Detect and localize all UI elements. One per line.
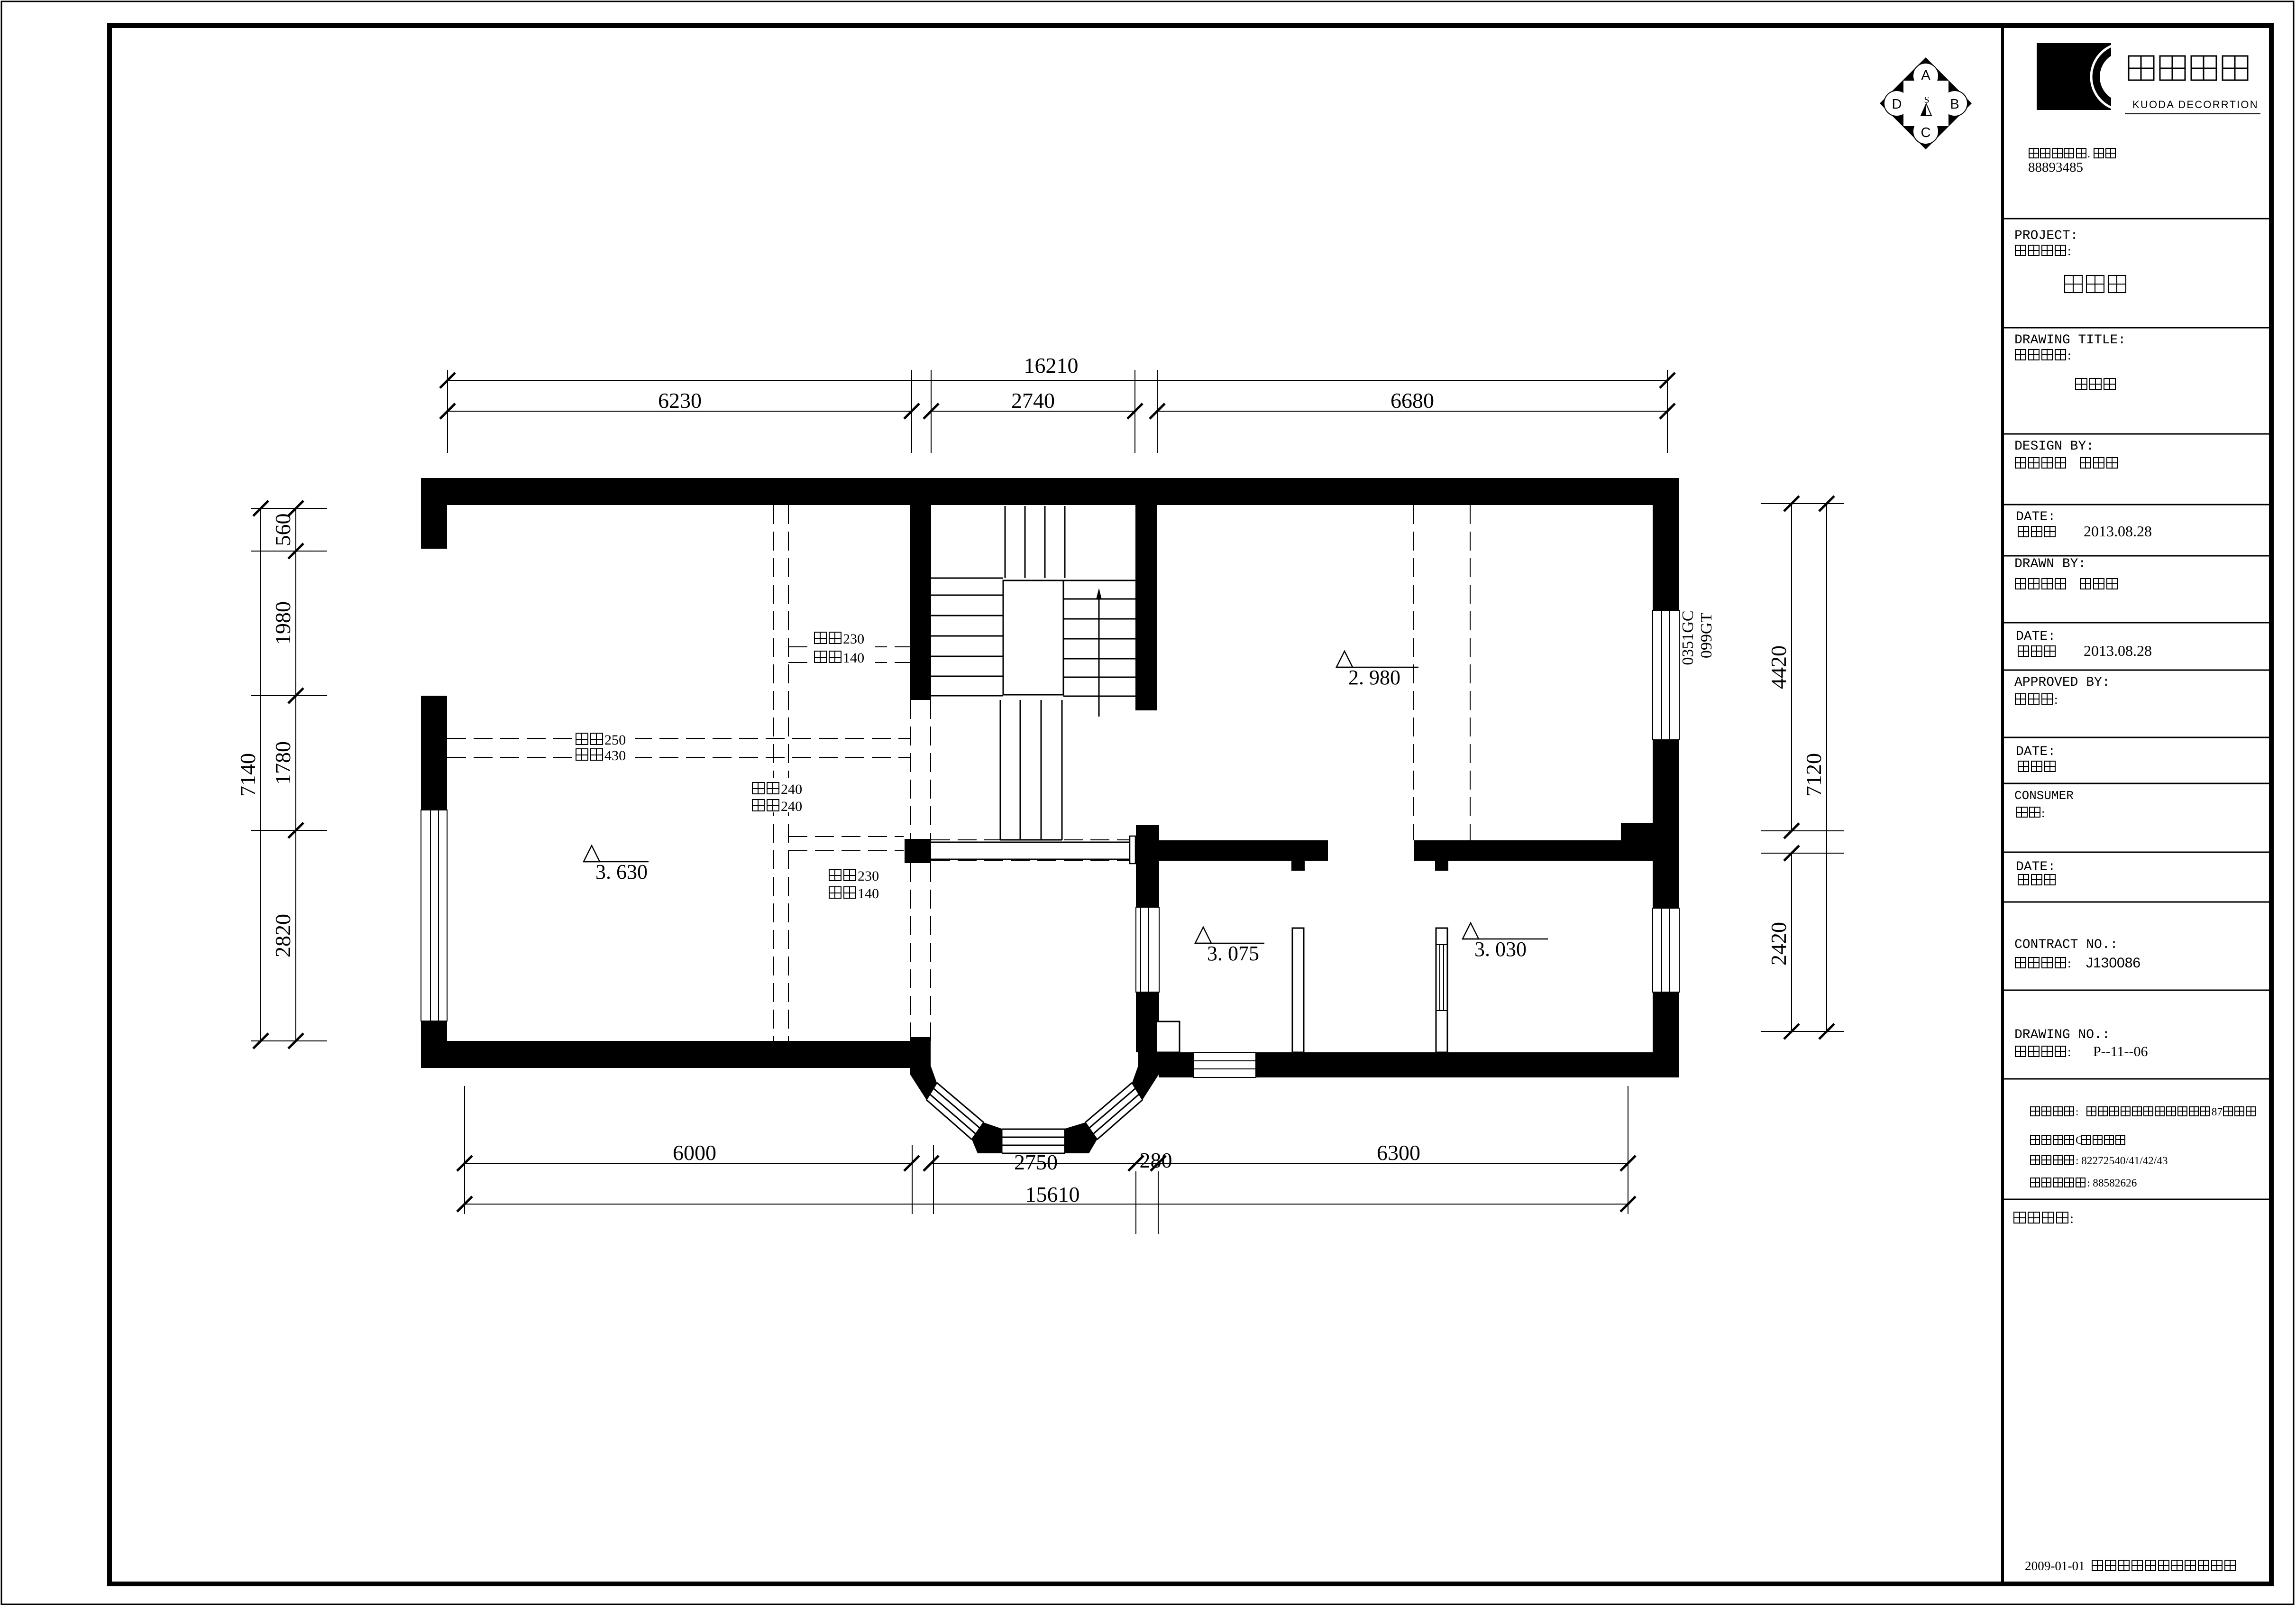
svg-text:.: .: [2087, 147, 2090, 160]
svg-text:J130086: J130086: [2086, 955, 2140, 971]
svg-text:88893485: 88893485: [2028, 160, 2083, 175]
svg-text:140: 140: [858, 885, 879, 902]
svg-text:DATE:: DATE:: [2016, 860, 2056, 874]
svg-text:2820: 2820: [271, 914, 295, 957]
svg-text:15610: 15610: [1025, 1182, 1080, 1206]
svg-text::: :: [2054, 692, 2058, 707]
svg-text:P--11--06: P--11--06: [2093, 1044, 2148, 1059]
svg-text:DRAWING NO.:: DRAWING NO.:: [2014, 1028, 2110, 1042]
svg-text:7140: 7140: [236, 753, 260, 797]
svg-text:B: B: [1950, 97, 1959, 112]
svg-text:6300: 6300: [1377, 1141, 1420, 1165]
svg-text:DATE:: DATE:: [2016, 510, 2056, 524]
svg-text:DATE:: DATE:: [2016, 745, 2056, 759]
svg-text:2013.08.28: 2013.08.28: [2084, 642, 2152, 659]
svg-text:6230: 6230: [658, 388, 702, 413]
svg-text:0351GC: 0351GC: [1679, 610, 1697, 665]
svg-text:2750: 2750: [1014, 1150, 1058, 1174]
svg-text:7120: 7120: [1802, 753, 1826, 797]
svg-text:6680: 6680: [1390, 388, 1434, 413]
svg-text:140: 140: [843, 650, 864, 666]
svg-text:PROJECT:: PROJECT:: [2014, 229, 2078, 243]
svg-text:CONTRACT NO.:: CONTRACT NO.:: [2014, 938, 2118, 952]
svg-text:APPROVED BY:: APPROVED BY:: [2014, 675, 2110, 690]
svg-text:2420: 2420: [1766, 922, 1791, 966]
svg-text::: :: [2041, 806, 2045, 820]
svg-text:1780: 1780: [271, 741, 295, 785]
svg-text:230: 230: [843, 631, 864, 647]
svg-text:S: S: [1924, 95, 1929, 105]
svg-text:2. 980: 2. 980: [1348, 666, 1400, 689]
svg-text::: :: [2076, 1106, 2078, 1118]
svg-text:D: D: [1892, 97, 1902, 112]
svg-text:: 88582626: : 88582626: [2087, 1177, 2137, 1189]
svg-text::: :: [2067, 1045, 2071, 1059]
svg-text:16210: 16210: [1024, 353, 1079, 377]
svg-text:560: 560: [271, 514, 295, 546]
svg-text:87: 87: [2212, 1106, 2223, 1118]
svg-text:4420: 4420: [1766, 645, 1791, 689]
svg-text:DRAWN BY:: DRAWN BY:: [2014, 557, 2086, 571]
svg-text:1980: 1980: [271, 601, 295, 645]
svg-text:2740: 2740: [1011, 388, 1055, 413]
svg-text::: :: [2070, 1211, 2074, 1226]
svg-text:099GT: 099GT: [1698, 613, 1715, 659]
svg-text:230: 230: [858, 868, 879, 884]
svg-text:280: 280: [1140, 1148, 1172, 1172]
svg-text:2013.08.28: 2013.08.28: [2084, 523, 2152, 540]
svg-text:250: 250: [604, 732, 626, 748]
svg-text:2009-01-01: 2009-01-01: [2025, 1559, 2085, 1573]
svg-text:CONSUMER: CONSUMER: [2014, 789, 2074, 803]
svg-text::: :: [2067, 348, 2071, 362]
svg-text:A: A: [1921, 68, 1930, 83]
svg-text:240: 240: [781, 798, 802, 814]
svg-text:DRAWING TITLE:: DRAWING TITLE:: [2014, 333, 2126, 348]
svg-text:6000: 6000: [673, 1141, 716, 1165]
svg-text:430: 430: [604, 747, 626, 764]
svg-text:DATE:: DATE:: [2016, 629, 2056, 644]
svg-text::: :: [2067, 244, 2071, 258]
svg-text:3. 075: 3. 075: [1207, 942, 1259, 965]
svg-text:3. 630: 3. 630: [595, 860, 648, 883]
svg-text:C: C: [1921, 125, 1931, 140]
svg-text:DESIGN BY:: DESIGN BY:: [2014, 439, 2094, 454]
svg-text:240: 240: [781, 781, 802, 797]
svg-text:3. 030: 3. 030: [1474, 938, 1527, 961]
svg-text::: :: [2067, 956, 2071, 970]
svg-text:KUODA DECORRTION: KUODA DECORRTION: [2132, 99, 2259, 110]
svg-text:: 82272540/41/42/43: : 82272540/41/42/43: [2076, 1155, 2168, 1167]
